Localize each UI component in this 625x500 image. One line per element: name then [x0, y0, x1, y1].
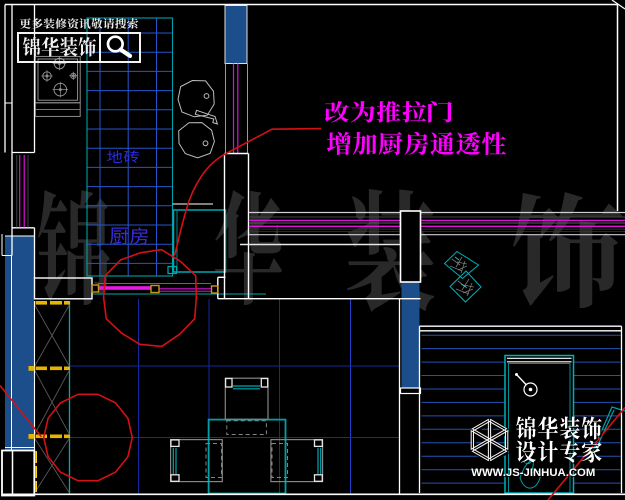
- svg-text:WWW.JS-JINHUA.COM: WWW.JS-JINHUA.COM: [471, 467, 595, 479]
